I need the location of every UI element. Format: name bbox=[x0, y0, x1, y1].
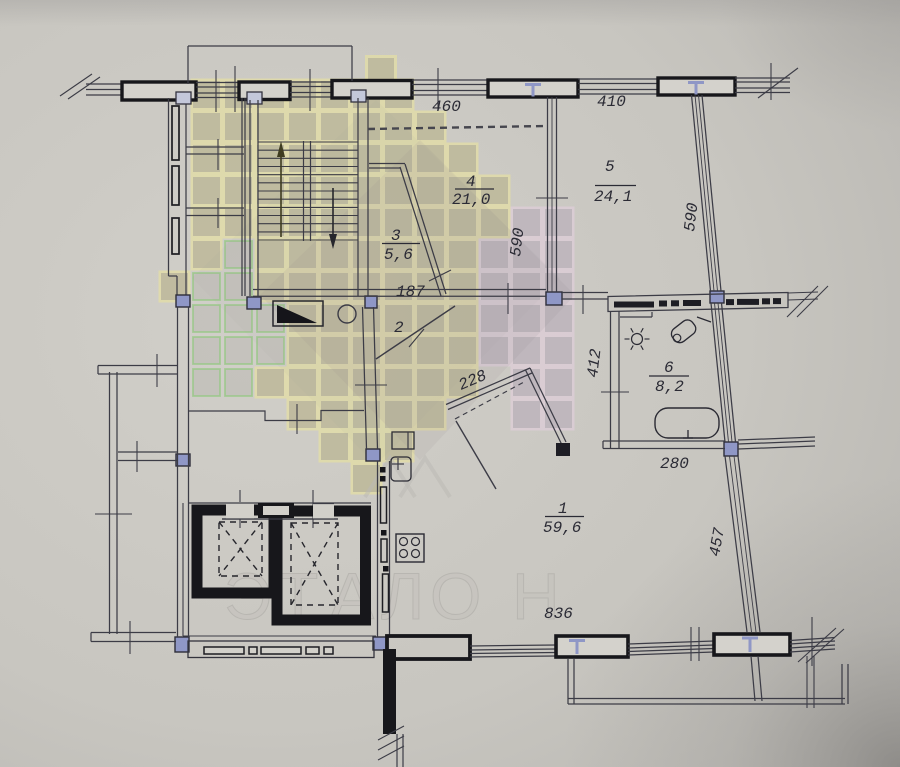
svg-text:1: 1 bbox=[558, 500, 568, 518]
svg-text:2: 2 bbox=[394, 319, 404, 337]
svg-text:410: 410 bbox=[597, 93, 626, 111]
svg-text:3: 3 bbox=[391, 227, 401, 245]
svg-text:8,2: 8,2 bbox=[655, 378, 684, 396]
svg-text:460: 460 bbox=[432, 98, 461, 116]
svg-text:59,6: 59,6 bbox=[543, 519, 582, 537]
svg-text:590: 590 bbox=[507, 226, 528, 257]
svg-text:187: 187 bbox=[396, 283, 425, 301]
svg-text:5,6: 5,6 bbox=[384, 246, 413, 264]
svg-text:280: 280 bbox=[660, 455, 689, 473]
svg-text:5: 5 bbox=[605, 158, 615, 176]
svg-text:О: О bbox=[430, 559, 481, 633]
svg-text:590: 590 bbox=[681, 201, 702, 232]
svg-text:24,1: 24,1 bbox=[594, 188, 632, 206]
svg-text:21,0: 21,0 bbox=[452, 191, 491, 209]
svg-text:4: 4 bbox=[466, 173, 476, 191]
svg-text:6: 6 bbox=[664, 359, 674, 377]
svg-text:412: 412 bbox=[584, 347, 605, 378]
svg-text:836: 836 bbox=[544, 605, 573, 623]
